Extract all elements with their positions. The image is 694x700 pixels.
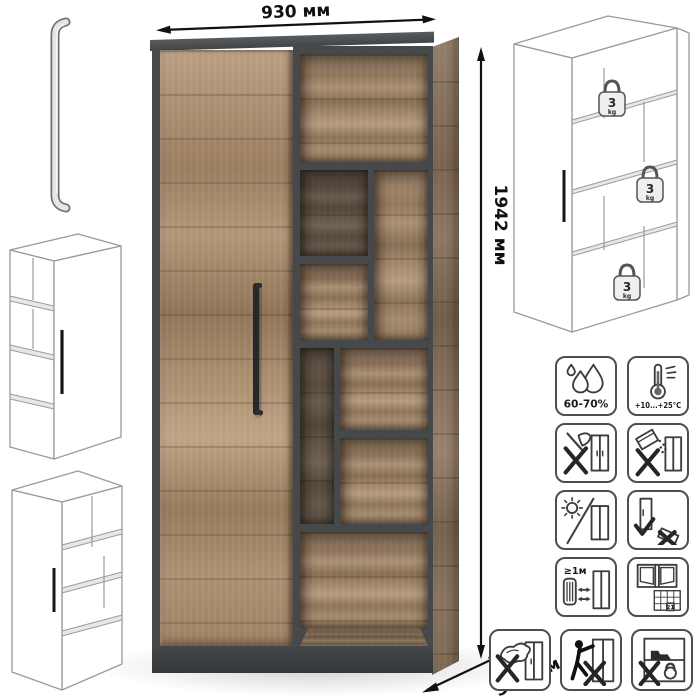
temperature-icon: +10...+25°C [627, 356, 689, 416]
no-spill-icon [627, 423, 689, 483]
door-handle-foot-top [256, 283, 262, 288]
shelf-compartment [340, 438, 428, 524]
product-sheet: 930 мм 1942 мм 366 мм [0, 0, 694, 700]
cabinet-side-panel [432, 37, 459, 675]
shelf-compartment [300, 170, 368, 256]
bottom-shelf-floor [299, 628, 429, 648]
wireframe-cabinet-closed [10, 234, 121, 459]
load-value: 3 [646, 182, 654, 196]
cabinet-base [152, 646, 433, 673]
no-direct-sunlight-icon [555, 490, 617, 550]
humidity-icon: 60-70% [555, 356, 617, 416]
dimension-width: 930 мм [156, 1, 436, 34]
no-climbing-icon [560, 629, 622, 691]
calendar-day-label: 21 [667, 605, 675, 611]
load-badge: 3 kg [599, 81, 625, 116]
shelf-compartment [340, 348, 428, 430]
shelf-compartment [300, 54, 428, 162]
dimension-height: 1942 мм [477, 47, 510, 659]
load-unit: kg [646, 195, 654, 202]
load-badge: 3 kg [637, 167, 663, 202]
open-shelf-column [293, 46, 433, 646]
load-value: 3 [608, 96, 616, 110]
door-handle [253, 283, 259, 415]
shelf-compartment [300, 264, 368, 340]
shelf-compartment [374, 170, 428, 340]
wireframe-load-capacity: 3 kg 3 kg 3 kg [514, 16, 689, 332]
transport-upright-icon [627, 490, 689, 550]
no-sharp-tools-icon [555, 423, 617, 483]
load-unit: kg [608, 109, 616, 116]
shelf-compartment [300, 532, 428, 628]
handle-drawing [55, 22, 66, 208]
heat-distance-icon: ≥1м [555, 557, 617, 617]
cabinet-door [160, 50, 293, 646]
cabinet-left-edge [152, 48, 160, 646]
no-overload-icon [631, 629, 693, 691]
heat-distance-label: ≥1м [564, 566, 587, 577]
load-unit: kg [623, 293, 631, 300]
height-label: 1942 мм [490, 184, 510, 265]
shelf-compartment [300, 348, 334, 524]
load-value: 3 [623, 280, 631, 294]
load-badge: 3 kg [614, 265, 640, 300]
width-label: 930 мм [261, 1, 331, 24]
temperature-label: +10...+25°C [635, 401, 682, 410]
humidity-label: 60-70% [564, 397, 609, 410]
no-wet-cloth-icon [489, 629, 551, 691]
ventilation-calendar-icon: 21 [627, 557, 689, 617]
